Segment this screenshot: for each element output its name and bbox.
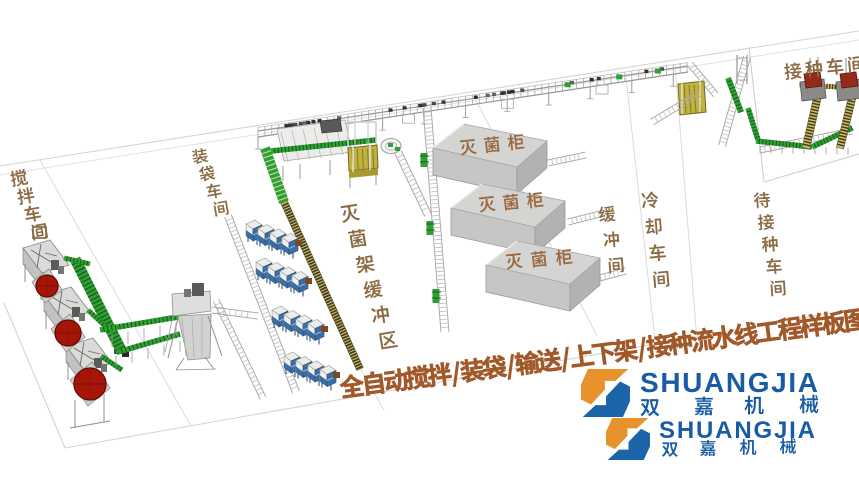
svg-text:SHUANGJIA: SHUANGJIA [640, 367, 818, 398]
